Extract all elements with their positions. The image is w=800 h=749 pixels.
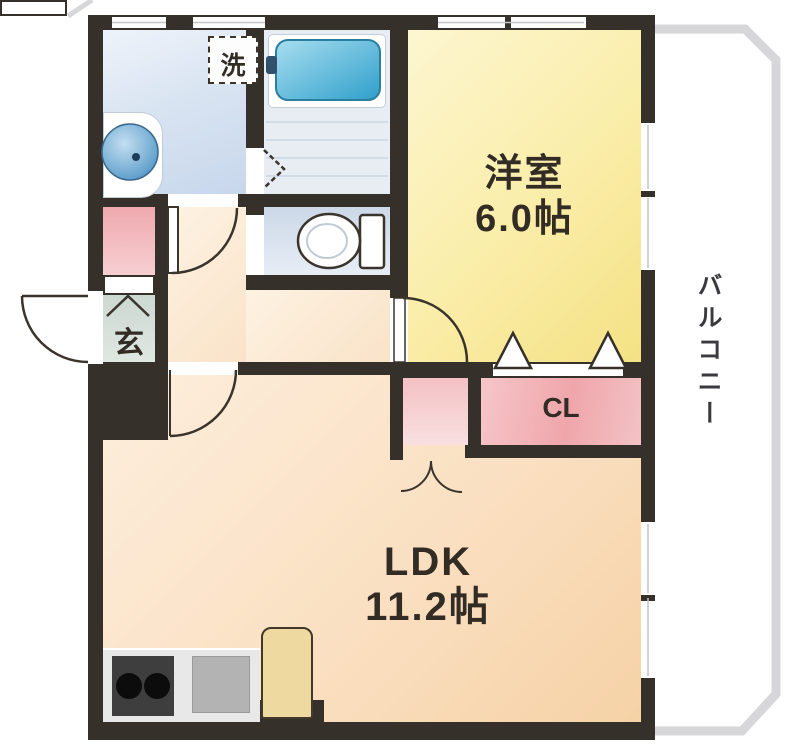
window-top-western-divider — [505, 17, 511, 28]
entrance-label: 玄 — [103, 318, 155, 362]
kitchen-sink — [192, 656, 250, 713]
water-heater — [261, 627, 313, 719]
window-top-laundry — [193, 17, 265, 28]
wall-toilet-bottom — [246, 275, 390, 290]
opening-cl-folding — [493, 364, 623, 376]
wall-entrance-right — [155, 194, 168, 367]
opening-bathroom-door — [246, 148, 264, 194]
entrance-door-swing-icon — [22, 296, 88, 362]
opening-entrance-door — [88, 291, 103, 364]
gas-stove — [112, 656, 174, 716]
opening-toilet-door — [246, 215, 264, 275]
room-toilet — [264, 207, 390, 275]
window-top-western — [438, 17, 586, 28]
shoe-cabinet — [103, 275, 155, 295]
ldk-label: LDK 11.2帖 — [248, 540, 608, 630]
wall-bottom — [88, 722, 655, 740]
cl-label: CL — [481, 392, 641, 424]
wall-cl-bottom — [465, 445, 655, 458]
wash-basin-counter — [103, 112, 163, 198]
window-top-washroom — [112, 17, 166, 28]
closet-lower-front — [0, 0, 67, 16]
room-hallway-lower — [246, 290, 390, 362]
opening-ldk-door — [168, 362, 238, 375]
wall-cl-divider — [468, 375, 481, 445]
wall-closet-left — [390, 362, 403, 460]
western-room-name: 洋室 — [408, 152, 641, 197]
room-closet-lower — [403, 375, 468, 445]
ldk-size: 11.2帖 — [248, 585, 608, 630]
ldk-name: LDK — [248, 540, 608, 585]
floorplan-canvas: 洋室 6.0帖 LDK 11.2帖 CL 玄 洗 バルコニー — [0, 0, 800, 749]
corner-boundary-line — [68, 0, 92, 16]
opening-washroom-door — [168, 194, 238, 207]
balcony-label: バルコニー — [686, 272, 726, 432]
western-room-label: 洋室 6.0帖 — [408, 152, 641, 242]
room-hallway — [168, 207, 246, 362]
wall-column-block — [88, 362, 168, 440]
western-room-size: 6.0帖 — [408, 197, 641, 242]
opening-western-door — [390, 298, 408, 362]
laundry-label: 洗 — [208, 46, 258, 82]
bathtub-surround — [268, 34, 386, 108]
window-right-ldk-divider — [641, 595, 655, 601]
window-right-western-divider — [641, 191, 655, 197]
room-closet-upper — [103, 207, 155, 275]
